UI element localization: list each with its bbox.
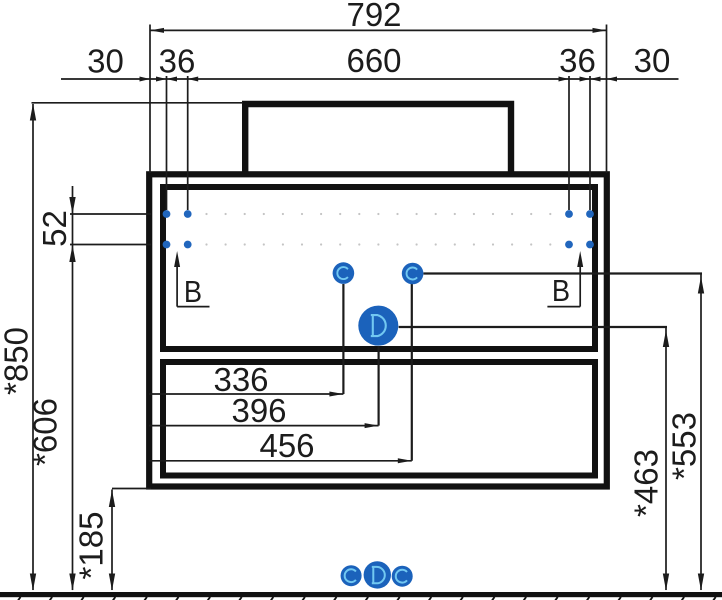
svg-text:396: 396 — [231, 392, 286, 429]
svg-text:*185: *185 — [73, 512, 110, 580]
svg-text:B: B — [552, 274, 570, 308]
svg-text:792: 792 — [346, 0, 401, 33]
svg-text:52: 52 — [36, 210, 73, 247]
svg-text:B: B — [184, 275, 202, 309]
svg-text:*850: *850 — [0, 327, 35, 395]
svg-text:660: 660 — [346, 42, 401, 79]
svg-text:30: 30 — [87, 43, 124, 80]
svg-text:*553: *553 — [666, 412, 703, 480]
svg-text:36: 36 — [559, 42, 596, 79]
svg-text:36: 36 — [159, 43, 196, 80]
svg-text:*463: *463 — [628, 449, 665, 517]
svg-text:*606: *606 — [27, 398, 64, 466]
svg-text:456: 456 — [259, 427, 314, 464]
svg-text:30: 30 — [634, 42, 671, 79]
